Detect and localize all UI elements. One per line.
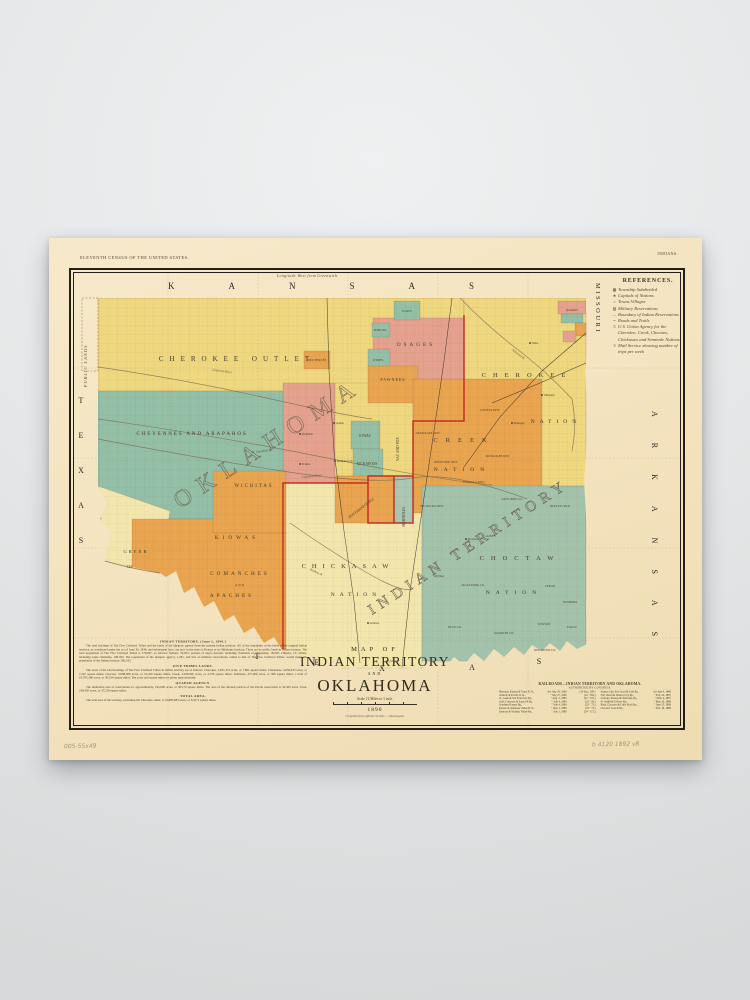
railroads-subtitle: AUTHORIZED BY CONGRESS. xyxy=(499,687,681,690)
title-oklahoma: OKLAHOMA xyxy=(287,676,463,696)
town-label-ardmore: Ardmore xyxy=(370,622,380,625)
map-label-texas-w-a: A xyxy=(78,501,84,510)
town-dot-muskogee xyxy=(511,422,513,424)
railroad-n-left-6: Denison & Washita Valley Ry., xyxy=(499,710,535,713)
references-legend: REFERENCES. ▦Township Subdivided★Capital… xyxy=(611,278,685,355)
map-label-eufaula-dist: EUFAULA DIST. xyxy=(463,480,485,484)
note-heading-2: QUAPAW AGENCY. xyxy=(79,681,307,685)
map-label-cherokee-outlet: CHEROKEE OUTLET xyxy=(159,355,315,363)
map-label-kaws: KAWS xyxy=(402,309,411,313)
map-label-cherokee-nation-1: CHEROKEE xyxy=(482,372,573,379)
railroads-left-column: Missouri, Kansas & Texas R. R.,Act July … xyxy=(499,691,596,714)
map-label-texas-w-t: T xyxy=(79,396,84,405)
map-title-block: MAP OF INDIAN TERRITORY AND OKLAHOMA Sca… xyxy=(287,646,463,718)
reference-symbol-6: 5 xyxy=(611,324,618,343)
reference-item-6: 5U.S. Union Agency for the Cherokee, Cre… xyxy=(611,324,685,343)
reference-text-7: Mail Service showing number of trips per… xyxy=(618,343,685,355)
town-dot-oklahoma-city xyxy=(334,460,336,462)
railroad-c-left-6: (24 " 117.) xyxy=(567,710,596,713)
map-label-red-river-co: RED RIVER CO. xyxy=(534,648,556,652)
map-label-nashoba: NASHOBA xyxy=(563,600,578,604)
map-label-texas-w-e: E xyxy=(79,431,84,440)
census-edition-note: ELEVENTH CENSUS OF THE UNITED STATES. xyxy=(80,255,189,260)
scale-note: Scale 12 Miles to 1 inch. xyxy=(287,697,463,701)
railroad-d-right-5: " Feb. 18, 1888 xyxy=(639,707,671,710)
town-label-muskogee: Muskogee xyxy=(514,422,526,425)
map-label-skullyville: SKULLYVILLE xyxy=(550,504,570,508)
pencil-inventory-note-left: 005-55x49 xyxy=(64,743,97,751)
town-label-kingfisher: Kingfisher xyxy=(302,433,313,436)
note-body-3: The total area of the territory, excludi… xyxy=(79,698,307,702)
railroad-c-right-5: (25 " 35.) xyxy=(671,707,681,710)
map-label-pawnees: PAWNEES xyxy=(380,377,405,382)
map-label-and: AND xyxy=(235,583,245,587)
town-dot-mcalester xyxy=(465,538,467,540)
railroads-title: RAILROADS—INDIAN TERRITORY AND OKLAHOMA. xyxy=(499,682,681,686)
map-label-deep-fork-dist: DEEP FORK DIST. xyxy=(434,460,458,464)
map-label-eagle: EAGLE xyxy=(567,625,577,629)
railroad-row-right-5: Choctaw Coal & Ry.," Feb. 18, 1888(25 " … xyxy=(601,707,681,710)
map-label-texas-s-s: S xyxy=(537,657,541,666)
note-heading-3: TOTAL AREA. xyxy=(79,694,307,698)
railroads-columns: Missouri, Kansas & Texas R. R.,Act July … xyxy=(499,691,681,714)
title-map-of: MAP OF xyxy=(287,646,463,653)
map-label-public-lands: PUBLIC LANDS xyxy=(83,345,88,389)
reference-item-7: 3Mail Service showing number of trips pe… xyxy=(611,343,685,355)
note-body-1: The areas of the land holdings of The Fi… xyxy=(79,668,307,679)
map-label-choctaw-nation-1: CHOCTAW xyxy=(480,555,561,562)
title-indian-territory: INDIAN TERRITORY xyxy=(287,654,463,670)
pencil-inventory-note-right: b 4120 1892 v8 xyxy=(592,741,640,749)
map-label-missouri: MISSOURI xyxy=(594,283,601,334)
note-heading-0: INDIAN TERRITORY. (June 1, 1890.) xyxy=(79,640,307,644)
map-label-texas-w-x: X xyxy=(78,466,84,475)
map-label-okmulgee-dist: OKMULGEE DIST. xyxy=(416,431,441,435)
map-label-cedar: CEDAR xyxy=(545,584,555,588)
map-label-kansas: KANSAS xyxy=(168,281,528,291)
map-label-greer-co: CO. xyxy=(127,564,134,569)
map-label-osages: OSAGES xyxy=(397,342,435,348)
town-label-oklahoma-city: Oklahoma City xyxy=(337,460,354,463)
map-label-otoes: OTOES xyxy=(373,358,383,362)
statistics-notes-block: INDIAN TERRITORY. (June 1, 1890.)The lan… xyxy=(79,637,307,723)
map-label-wichitas: WICHITAS xyxy=(234,484,273,489)
map-label-towson: TOWSON xyxy=(538,622,552,626)
town-label-el-reno: El Reno xyxy=(302,463,311,466)
map-label-chickasaw-nation-2: NATION xyxy=(331,592,381,598)
map-label-sac-and-fox: SAC AND FOX xyxy=(396,437,400,461)
statistics-notes-text: INDIAN TERRITORY. (June 1, 1890.)The lan… xyxy=(79,640,307,702)
railroad-n-right-5: Choctaw Coal & Ry., xyxy=(601,707,639,710)
plate-label: INDIANS. xyxy=(657,251,678,256)
map-label-choctaw-nation-2: NATION xyxy=(486,590,542,596)
town-label-vinita: Vinita xyxy=(532,342,539,345)
map-label-kickapoos: KICKAPOOS xyxy=(357,462,378,466)
map-label-arkansas: ARKANSAS xyxy=(650,411,659,662)
map-label-iowas: IOWAS xyxy=(359,434,370,438)
railroad-row-left-6: Denison & Washita Valley Ry.," July 1, 1… xyxy=(499,710,596,713)
map-label-gaines: GAINES xyxy=(485,534,496,538)
title-imprint: Compiled from official records — Washing… xyxy=(287,714,463,718)
map-label-muskogee-dist: MUSKOGEE DIST. xyxy=(486,454,511,458)
map-label-greer: GREER xyxy=(123,549,148,554)
references-items: ▦Township Subdivided★Capitals of Nations… xyxy=(611,287,685,355)
map-label-poncas: PONCAS xyxy=(374,328,387,332)
map-label-coweta-dist: COWETA DIST. xyxy=(480,408,501,412)
town-dot-ardmore xyxy=(367,622,369,624)
reference-text-6: U.S. Union Agency for the Cherokee, Cree… xyxy=(618,324,685,343)
map-label-blue-co: BLUE CO. xyxy=(448,625,462,629)
map-label-wewoka-dist: WE-WO-KA DIST. xyxy=(420,504,444,508)
scale-bar xyxy=(333,702,417,705)
note-body-2: The unallotted area of reservations is, … xyxy=(79,685,307,693)
map-label-nez-perces: NEZ PERCÉS xyxy=(308,357,327,362)
product-photo-scene: ELEVENTH CENSUS OF THE UNITED STATES. IN… xyxy=(0,0,750,1000)
railroads-list-block: RAILROADS—INDIAN TERRITORY AND OKLAHOMA.… xyxy=(499,682,681,728)
town-label-mcalester: McAlester xyxy=(468,538,479,541)
town-dot-el-reno xyxy=(299,463,301,465)
note-body-0: The land holdings of The Five Civilized … xyxy=(79,644,307,663)
map-label-texas-s-a: A xyxy=(469,663,475,672)
references-title: REFERENCES. xyxy=(611,278,685,284)
map-label-texas-w-s: S xyxy=(79,536,83,545)
map-label-creek-nation-1: CREEK xyxy=(433,437,494,444)
town-dot-kingfisher xyxy=(299,433,301,435)
map-label-quapaws: QUAPAWS xyxy=(566,309,579,312)
map-label-creek-nation-2: NATION xyxy=(434,467,490,473)
map-label-jacks-fork-co: JACKS FORK CO. xyxy=(461,583,485,587)
town-dot-guthrie xyxy=(333,422,335,424)
railroads-right-column: Kansas City, Fort Scott & Gulf Ry.,Act J… xyxy=(601,691,681,714)
map-label-apaches: APACHES xyxy=(210,593,254,599)
map-label-sans-bois-co: SANS BOIS CO. xyxy=(502,497,523,501)
town-dot-vinita xyxy=(529,342,531,344)
map-label-atoka: ATOKA xyxy=(434,574,445,578)
map-label-cheyennes-arapahos: CHEYENNES AND ARAPAHOS xyxy=(136,431,247,437)
map-label-comanches: COMANCHES xyxy=(210,571,270,577)
map-label-cherokee-nation-2: NATION xyxy=(531,419,581,425)
title-year: 1890 xyxy=(287,707,463,713)
map-label-kiamichi-co: KIAMICHI CO. xyxy=(494,631,514,635)
reference-symbol-7: 3 xyxy=(611,343,618,355)
town-label-guthrie: Guthrie xyxy=(336,422,345,425)
town-dot-tahlequah xyxy=(541,394,543,396)
map-label-seminoles: SEMINOLES xyxy=(402,507,406,527)
town-label-tahlequah: Tahlequah xyxy=(544,394,555,397)
railroad-d-left-6: " July 1, 1886 xyxy=(535,710,567,713)
note-heading-1: FIVE TRIBES LANDS. xyxy=(79,664,307,668)
map-label-kiowas: KIOWAS xyxy=(215,535,259,541)
map-poster: ELEVENTH CENSUS OF THE UNITED STATES. IN… xyxy=(49,238,702,760)
